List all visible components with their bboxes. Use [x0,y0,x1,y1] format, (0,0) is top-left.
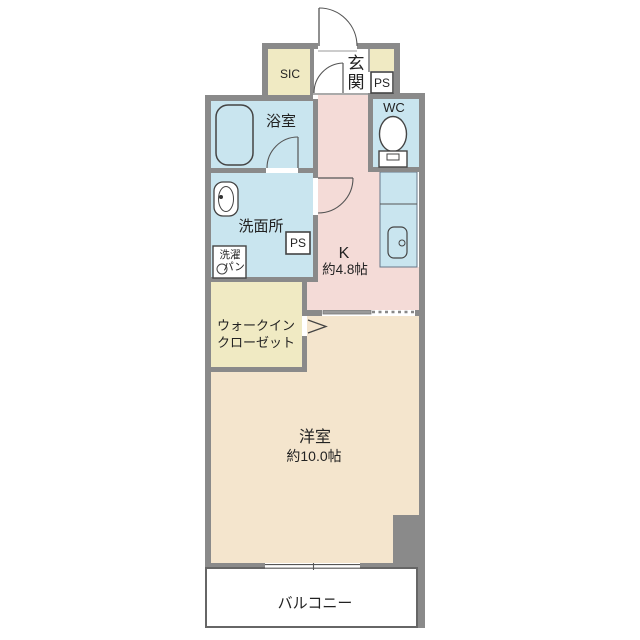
floorplan-canvas: SIC 玄 関 PS WC 浴室 洗面所 洗濯 パン PS K 約4.8帖 ウォ… [0,0,640,640]
wall-segment [368,93,425,99]
wall-segment [313,215,318,282]
wall-segment [310,49,314,95]
bedroom-floor-bottom [211,515,393,563]
wall-segment [205,95,211,570]
wall-segment [205,95,313,101]
laundry-label-line2: パン [223,261,245,273]
bedroom-floor-top [307,316,419,372]
wall-segment [419,93,425,570]
kitchen-counter [380,172,417,267]
washroom-label: 洗面所 [238,218,283,235]
wall-segment [205,367,307,372]
entrance-label-char2: 関 [348,73,365,92]
balcony-label: バルコニー [278,595,353,612]
bedroom-label: 洋室 [299,428,331,446]
toilet-bowl [380,117,407,152]
entrance-step-line [313,93,368,95]
kitchen-size-label: 約4.8帖 [322,262,368,277]
wall-segment [262,43,318,49]
wall-segment [417,568,425,628]
toilet-tank [379,151,407,167]
wc-label: WC [383,100,405,115]
wall-segment [368,49,370,72]
bedroom-size-label: 約10.0帖 [286,448,341,464]
kitchen-floor-right [380,267,419,312]
wic-label-line1: ウォークイン [217,318,295,333]
sliding-door-panel [323,311,371,315]
floorplan: SIC 玄 関 PS WC 浴室 洗面所 洗濯 パン PS K 約4.8帖 ウォ… [0,0,640,640]
washroom-door-opening [313,178,318,215]
wic-opening [302,316,307,336]
wall-segment [298,168,318,173]
wic-label-line2: クローゼット [217,335,295,350]
ps-mid-label: PS [290,236,306,250]
wall-segment [302,336,307,367]
laundry-label-line1: 洗濯 [220,249,241,261]
sic-label: SIC [280,67,300,81]
washroom-sink-faucet [219,195,223,199]
wall-segment [302,310,322,316]
wall-segment [205,168,266,173]
kitchen-label: K [339,245,350,262]
bath-door-opening [266,168,298,173]
bath-label: 浴室 [266,113,296,130]
wall-segment [262,43,268,95]
wall-segment [357,43,400,49]
wall-segment [415,310,425,316]
entrance-side-closet-floor [370,49,394,71]
kitchen-floor [318,172,380,312]
wall-segment [313,99,318,178]
pillar [393,515,425,570]
entrance-label-char1: 玄 [348,54,365,73]
kitchen-floor-sliver [307,282,318,312]
ps-top-label: PS [374,76,390,90]
kitchen-corridor-floor [318,95,368,174]
washroom-sink [214,182,238,216]
wall-segment [394,43,400,95]
wall-segment [368,167,425,172]
wall-segment [368,93,373,167]
front-door-swing-arc [319,8,357,46]
